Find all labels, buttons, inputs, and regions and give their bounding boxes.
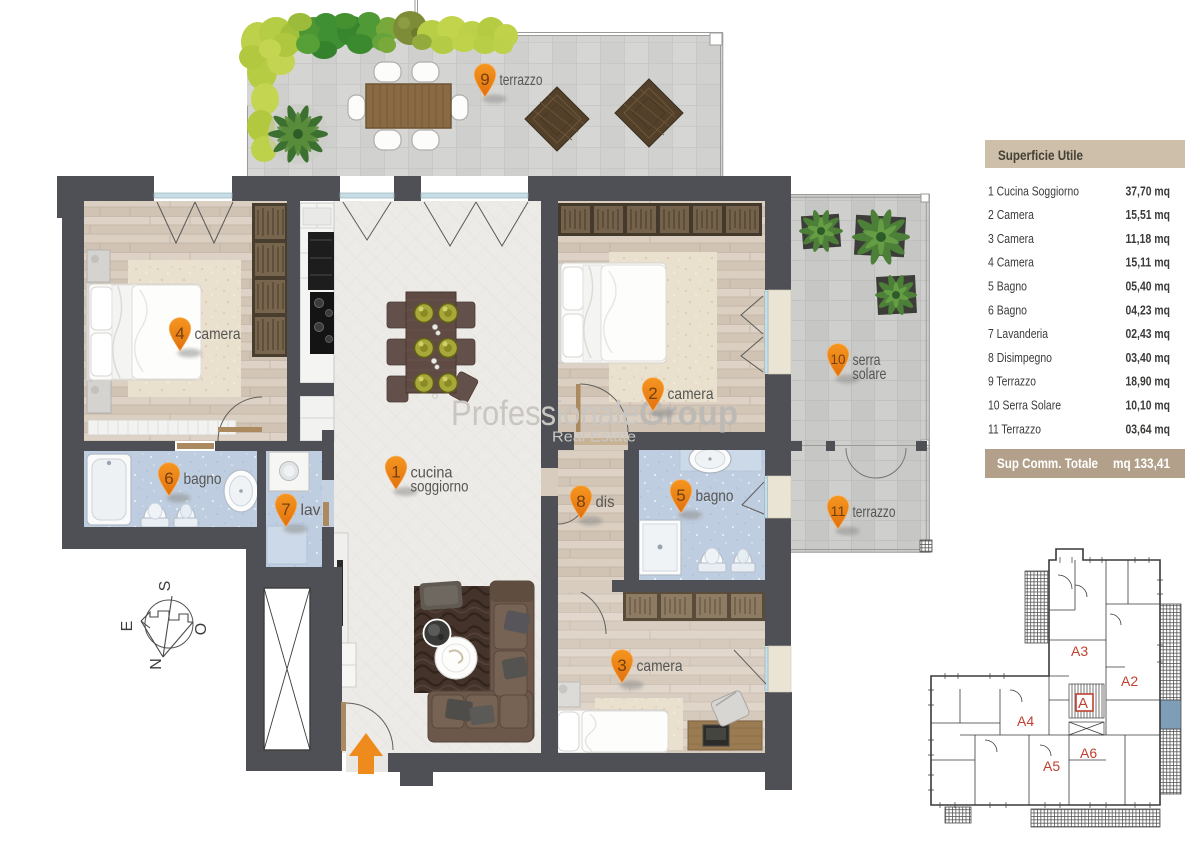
svg-text:15,11 mq: 15,11 mq	[1126, 255, 1171, 270]
svg-text:4: 4	[175, 324, 184, 343]
svg-text:8 Disimpegno: 8 Disimpegno	[988, 350, 1052, 365]
svg-text:05,40 mq: 05,40 mq	[1126, 279, 1171, 294]
svg-text:terrazzo: terrazzo	[500, 72, 543, 89]
svg-text:11,18 mq: 11,18 mq	[1126, 231, 1171, 246]
svg-text:A6: A6	[1080, 745, 1097, 761]
svg-text:A3: A3	[1071, 643, 1088, 659]
svg-text:1 Cucina Soggiorno: 1 Cucina Soggiorno	[988, 183, 1079, 198]
svg-text:03,40 mq: 03,40 mq	[1126, 350, 1171, 365]
svg-text:A: A	[1078, 695, 1088, 712]
svg-text:mq 133,41: mq 133,41	[1113, 455, 1170, 471]
svg-text:11 Terrazzo: 11 Terrazzo	[988, 421, 1041, 436]
svg-text:7: 7	[281, 500, 290, 519]
svg-text:3 Camera: 3 Camera	[988, 231, 1035, 246]
svg-text:O: O	[193, 623, 210, 635]
svg-text:dis: dis	[596, 494, 615, 511]
svg-text:18,90 mq: 18,90 mq	[1126, 374, 1171, 389]
svg-text:bagno: bagno	[696, 488, 734, 505]
svg-text:1: 1	[391, 463, 400, 482]
svg-text:N: N	[148, 658, 165, 670]
svg-text:15,51 mq: 15,51 mq	[1126, 207, 1171, 222]
svg-text:02,43 mq: 02,43 mq	[1126, 326, 1171, 341]
svg-text:9: 9	[480, 70, 489, 89]
svg-text:A5: A5	[1043, 758, 1060, 774]
svg-text:camera: camera	[195, 326, 241, 343]
svg-text:E: E	[119, 621, 136, 632]
svg-text:lav: lav	[301, 502, 321, 519]
svg-text:bagno: bagno	[184, 471, 222, 488]
svg-text:7 Lavanderia: 7 Lavanderia	[988, 326, 1049, 341]
svg-text:2: 2	[648, 384, 657, 403]
svg-text:3: 3	[617, 656, 626, 675]
svg-text:Real Estate: Real Estate	[552, 429, 636, 446]
svg-text:Professionale: Professionale	[451, 394, 639, 433]
svg-text:10: 10	[831, 351, 846, 367]
svg-text:11: 11	[831, 503, 846, 519]
svg-text:10,10 mq: 10,10 mq	[1126, 398, 1171, 413]
svg-text:04,23 mq: 04,23 mq	[1126, 302, 1171, 317]
svg-text:37,70 mq: 37,70 mq	[1126, 183, 1171, 198]
svg-text:6: 6	[164, 469, 173, 488]
svg-text:8: 8	[576, 492, 585, 511]
svg-text:terrazzo: terrazzo	[853, 504, 896, 521]
svg-text:camera: camera	[668, 386, 714, 403]
svg-text:camera: camera	[637, 658, 683, 675]
svg-text:6 Bagno: 6 Bagno	[988, 302, 1027, 317]
svg-text:9 Terrazzo: 9 Terrazzo	[988, 374, 1036, 389]
svg-text:2 Camera: 2 Camera	[988, 207, 1035, 222]
svg-text:solare: solare	[853, 366, 887, 383]
svg-text:soggiorno: soggiorno	[411, 479, 469, 496]
svg-text:Sup Comm. Totale: Sup Comm. Totale	[997, 455, 1098, 471]
svg-text:Superficie Utile: Superficie Utile	[998, 147, 1083, 163]
svg-text:03,64 mq: 03,64 mq	[1126, 421, 1171, 436]
svg-text:4 Camera: 4 Camera	[988, 255, 1035, 270]
svg-text:5: 5	[676, 486, 685, 505]
svg-text:5 Bagno: 5 Bagno	[988, 279, 1027, 294]
svg-text:A2: A2	[1121, 673, 1138, 689]
svg-text:S: S	[157, 581, 174, 592]
svg-text:A4: A4	[1017, 713, 1034, 729]
svg-text:10 Serra Solare: 10 Serra Solare	[988, 398, 1061, 413]
